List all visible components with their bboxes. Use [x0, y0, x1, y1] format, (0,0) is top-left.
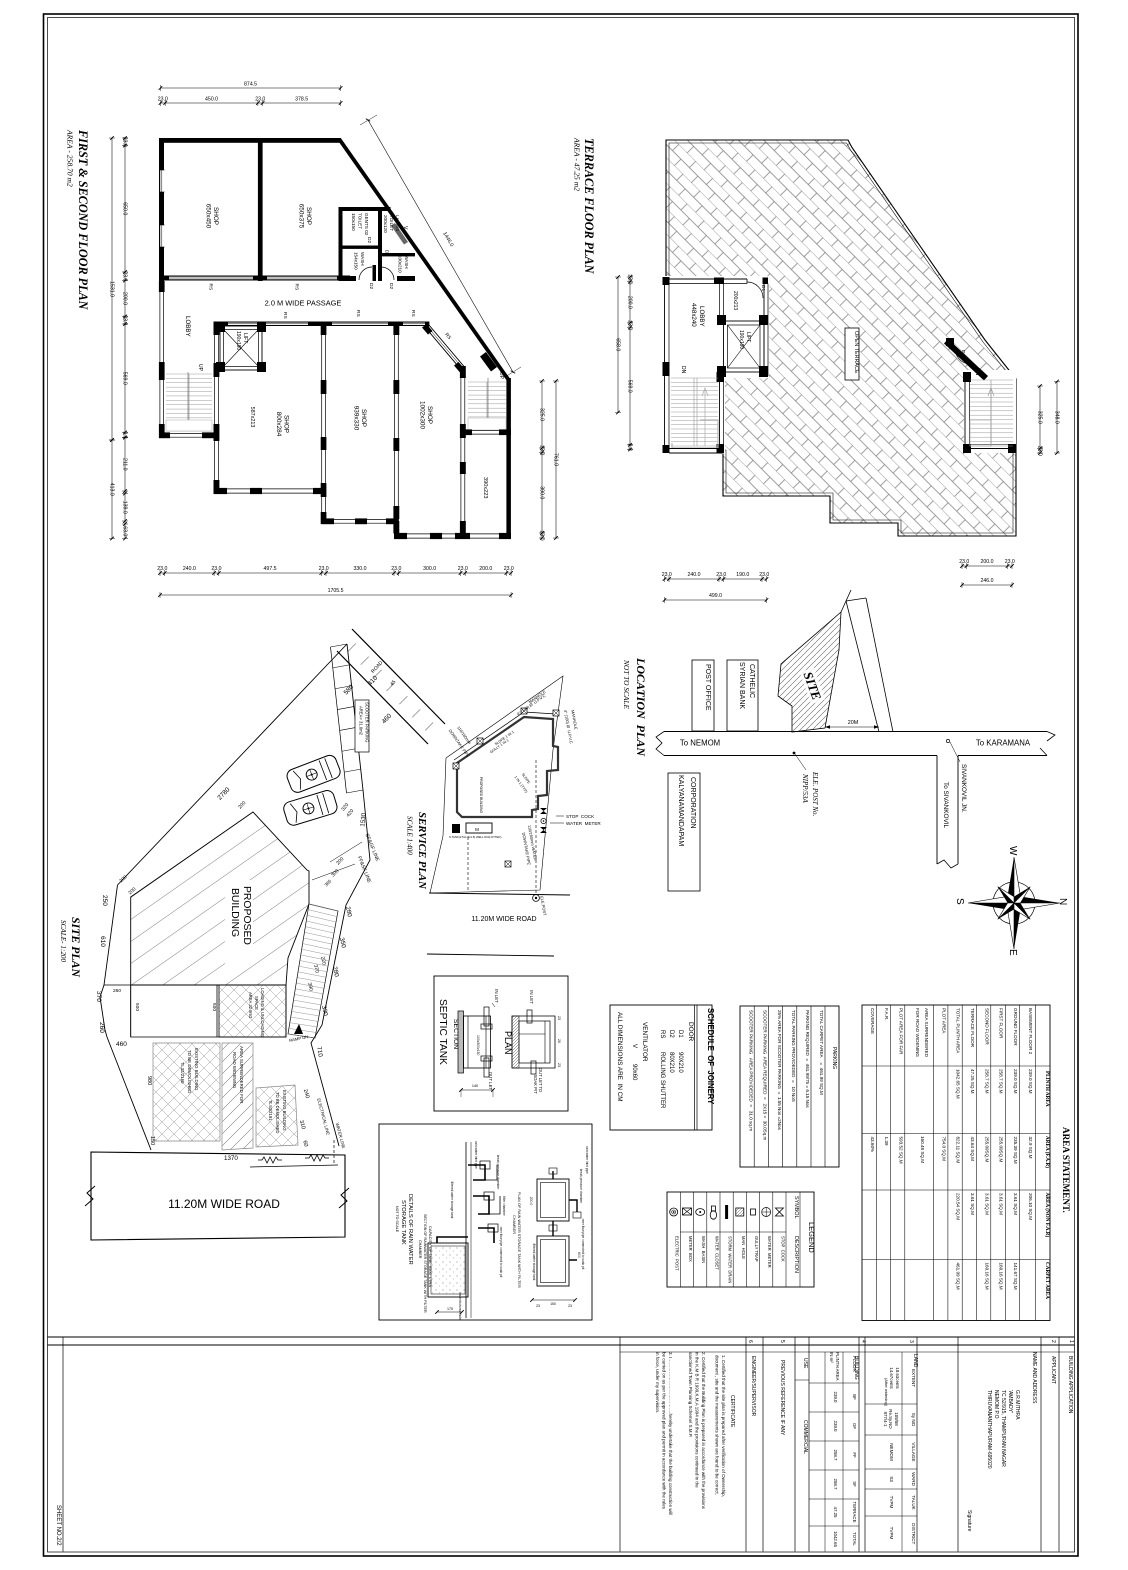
svg-text:RS: RS	[355, 310, 361, 317]
svg-text:METER BOX: METER BOX	[688, 1236, 693, 1262]
svg-text:VENTILATOR: VENTILATOR	[641, 1022, 648, 1062]
svg-text:ENGINEER/SUPERVISOR: ENGINEER/SUPERVISOR	[750, 1356, 756, 1417]
svg-text:240.0: 240.0	[183, 566, 196, 572]
svg-text:658.0: 658.0	[615, 338, 621, 351]
svg-text:23.0: 23.0	[1037, 446, 1043, 456]
svg-text:200.0: 200.0	[479, 566, 492, 572]
svg-text:461.99 SQ.M: 461.99 SQ.M	[956, 1263, 961, 1290]
svg-text:(After widening): (After widening)	[884, 1378, 889, 1407]
svg-text:SCHEDULE OF JOINERY: SCHEDULE OF JOINERY	[706, 1008, 715, 1105]
svg-text:PLINTH AREA: PLINTH AREA	[1044, 1071, 1050, 1107]
svg-text:STORM WATER DRAIN: STORM WATER DRAIN	[728, 1236, 733, 1283]
svg-text:D1: D1	[960, 350, 966, 356]
svg-text:3.61 SQ.M: 3.61 SQ.M	[984, 1193, 989, 1215]
svg-text:AREA 32.9m2: AREA 32.9m2	[248, 992, 253, 1019]
svg-text:800x284: 800x284	[275, 412, 282, 437]
svg-text:LOCATION PLAN: LOCATION PLAN	[634, 657, 648, 757]
svg-text:NEMOM P.O: NEMOM P.O	[993, 1390, 999, 1419]
svg-text:D2: D2	[368, 283, 374, 289]
svg-text:WARD: WARD	[911, 1472, 916, 1487]
svg-text:235.39 SQ.M: 235.39 SQ.M	[1013, 1137, 1018, 1164]
svg-text:TO BE DEMOLISHED: TO BE DEMOLISHED	[187, 1050, 192, 1093]
svg-text:23.0: 23.0	[539, 445, 545, 455]
svg-text:246.0: 246.0	[981, 578, 994, 584]
svg-text:11.20M WIDE ROAD: 11.20M WIDE ROAD	[471, 916, 536, 923]
svg-text:PROPOSED BUILDING: PROPOSED BUILDING	[479, 777, 483, 814]
svg-text:500: 500	[134, 1003, 140, 1011]
svg-text:STORAGE TANK: STORAGE TANK	[400, 1200, 406, 1245]
svg-text:450.0: 450.0	[205, 97, 218, 103]
svg-text:4: 4	[860, 1340, 866, 1343]
svg-text:COVERAGE: COVERAGE	[870, 1008, 875, 1034]
svg-text:2.0 M WIDE PASSAGE: 2.0 M WIDE PASSAGE	[265, 299, 342, 308]
svg-text:FOR ROAD WIDENING: FOR ROAD WIDENING	[915, 1008, 920, 1057]
svg-text:filtered water storage tank: filtered water storage tank	[532, 1244, 536, 1281]
svg-text:413.0: 413.0	[109, 483, 115, 496]
svg-text:DETAILS OF RAIN WATER: DETAILS OF RAIN WATER	[407, 1194, 413, 1265]
svg-text:RS: RS	[659, 1030, 665, 1038]
svg-text:SITE PLAN: SITE PLAN	[69, 917, 83, 977]
svg-text:ELE. POST No.: ELE. POST No.	[811, 771, 819, 816]
svg-text:LIFT: LIFT	[745, 332, 751, 342]
svg-text:23.0: 23.0	[319, 566, 329, 572]
svg-text:1531.0: 1531.0	[109, 281, 115, 297]
svg-text:WATER METER: WATER METER	[566, 821, 601, 826]
svg-text:100x300x150: 100x300x150	[476, 1035, 480, 1055]
svg-text:To NEMOM: To NEMOM	[680, 739, 720, 748]
svg-text:497.5: 497.5	[264, 566, 277, 572]
svg-text:3. I……………………………….hereby undert: 3. I……………………………….hereby undertake that t…	[668, 1352, 673, 1515]
svg-text:977/4-1: 977/4-1	[883, 1412, 888, 1427]
svg-text:63.0: 63.0	[122, 526, 128, 536]
svg-text:BUILDING: BUILDING	[229, 888, 240, 937]
svg-text:448x240: 448x240	[690, 303, 697, 327]
svg-text:WASH BASIN: WASH BASIN	[701, 1236, 706, 1263]
svg-text:THIRUVANANTHAPURAM-695020: THIRUVANANTHAPURAM-695020	[986, 1390, 992, 1469]
svg-text:TOTAL: TOTAL	[852, 1532, 857, 1546]
svg-text:SECTION OF RAINWATER STORAGE T: SECTION OF RAINWATER STORAGE TANK WITH F…	[423, 1214, 427, 1313]
svg-text:be carried on as per the appro: be carried on as per the approved plan a…	[662, 1352, 667, 1510]
svg-text:TOTAL PARKING PROVIDEDED =: TOTAL PARKING PROVIDEDED = 10 NoS	[791, 1010, 796, 1102]
svg-text:USE: USE	[802, 1358, 808, 1369]
svg-text:139.0: 139.0	[122, 501, 128, 514]
svg-text:LEGEND: LEGEND	[807, 1222, 816, 1253]
svg-text:23: 23	[568, 1304, 572, 1308]
svg-text:GENTS 02: GENTS 02	[364, 213, 369, 236]
svg-text:W: W	[1007, 846, 1018, 856]
svg-text:160.48 SQ.M: 160.48 SQ.M	[920, 1136, 925, 1163]
svg-text:PLOT AREA: PLOT AREA	[941, 1008, 946, 1034]
svg-text:1002x300: 1002x300	[419, 401, 426, 430]
svg-text:150x150: 150x150	[351, 213, 356, 231]
svg-text:NOT TO SCALE: NOT TO SCALE	[622, 659, 631, 710]
svg-text:PLAN: PLAN	[503, 1031, 513, 1055]
svg-text:TERRACE FLOOR PLAN: TERRACE FLOOR PLAN	[582, 138, 596, 275]
svg-text:AREA SURRENDERED: AREA SURRENDERED	[924, 1008, 929, 1058]
svg-text:160.16 SQ.M: 160.16 SQ.M	[999, 1263, 1004, 1290]
svg-text:650x375: 650x375	[298, 204, 305, 229]
svg-text:GROUND FLOOR: GROUND FLOOR	[1013, 1008, 1018, 1046]
svg-text:150: 150	[550, 1302, 556, 1306]
svg-text:23.0: 23.0	[122, 137, 128, 147]
svg-text:200.0: 200.0	[529, 1197, 533, 1206]
svg-text:378.5: 378.5	[295, 97, 308, 103]
svg-text:23.0: 23.0	[157, 566, 167, 572]
svg-text:GULLY TRAP: GULLY TRAP	[754, 1236, 759, 1262]
svg-text:D2: D2	[384, 250, 390, 256]
svg-text:SEPTIC TANK: SEPTIC TANK	[437, 999, 448, 1065]
svg-text:5: 5	[779, 1340, 785, 1343]
svg-text:Signature: Signature	[966, 1510, 972, 1532]
svg-text:PLINTH AREA: PLINTH AREA	[835, 1352, 840, 1381]
svg-text:23.0: 23.0	[504, 566, 514, 572]
svg-text:200.0: 200.0	[627, 296, 633, 309]
svg-text:IN LET: IN LET	[494, 989, 499, 1003]
svg-text:EXTENT: EXTENT	[911, 1369, 916, 1387]
svg-text:175: 175	[447, 1307, 453, 1311]
svg-text:over flow pipe connected to so: over flow pipe connected to soak pit	[499, 1227, 503, 1278]
svg-text:761.0: 761.0	[553, 453, 559, 466]
svg-text:AREA (F.A.R): AREA (F.A.R)	[1044, 1136, 1051, 1168]
svg-text:sanctioned Town Planning Schem: sanctioned Town Planning Scheme/ S.M.P.	[688, 1352, 693, 1437]
svg-text:FIRST FLOOR: FIRST FLOOR	[999, 1008, 1004, 1039]
svg-text:RS: RS	[282, 312, 288, 319]
svg-text:600: 600	[577, 1252, 581, 1258]
svg-text:PLAN OF RAIN WATER STORAGE TAN: PLAN OF RAIN WATER STORAGE TANK WITH FIL…	[517, 1192, 521, 1288]
svg-text:23.0: 23.0	[1005, 559, 1015, 565]
svg-text:206.10 SQ.M: 206.10 SQ.M	[1028, 1193, 1033, 1220]
svg-text:258.7 SQ.M: 258.7 SQ.M	[984, 1069, 989, 1094]
svg-text:To KARAMANA: To KARAMANA	[976, 739, 1031, 748]
svg-text:SYRIAN BANK: SYRIAN BANK	[738, 662, 745, 709]
svg-text:BASEMENT FLOOR 2: BASEMENT FLOOR 2	[1028, 1008, 1033, 1055]
svg-text:CARPET AREA: CARPET AREA	[1044, 1262, 1050, 1299]
svg-text:TOTAL PLINTH AREA: TOTAL PLINTH AREA	[956, 1008, 961, 1054]
svg-text:SHOP: SHOP	[283, 415, 290, 433]
svg-text:2.3: 2.3	[627, 444, 633, 451]
svg-text:160.16 SQ.M: 160.16 SQ.M	[984, 1263, 989, 1290]
svg-text:WASH: WASH	[360, 252, 365, 266]
svg-text:23.0: 23.0	[627, 320, 633, 330]
svg-text:SHOP: SHOP	[212, 207, 219, 225]
svg-text:CHAMBER: CHAMBER	[512, 1215, 516, 1234]
svg-text:SCOOTER PARKING: SCOOTER PARKING	[365, 702, 370, 742]
svg-text:WASH: WASH	[404, 255, 409, 269]
svg-text:DISTRICT: DISTRICT	[911, 1523, 916, 1544]
svg-text:239.0: 239.0	[833, 1392, 838, 1404]
svg-text:200x120: 200x120	[383, 215, 388, 233]
svg-text:FIRST & SECOND FLOOR PLAN: FIRST & SECOND FLOOR PLAN	[76, 129, 90, 311]
svg-text:43.64 SQ.M: 43.64 SQ.M	[970, 1137, 975, 1162]
svg-text:OUT LET: OUT LET	[488, 1072, 493, 1091]
svg-text:LIFT: LIFT	[242, 333, 248, 343]
svg-text:23.0: 23.0	[759, 572, 769, 578]
svg-text:SYMBOL: SYMBOL	[793, 1196, 799, 1218]
svg-text:SCALE 1:400: SCALE 1:400	[406, 816, 414, 855]
svg-text:PARKING REQUIRED = 461.99/75: PARKING REQUIRED = 461.99/75 = 6.15 Nos	[805, 1010, 810, 1108]
svg-text:Tc.32/2160: Tc.32/2160	[180, 1062, 185, 1084]
svg-text:18.63cents: 18.63cents	[895, 1367, 900, 1389]
svg-text:23.0: 23.0	[539, 530, 545, 540]
svg-text:STOP COCK: STOP COCK	[566, 814, 595, 819]
svg-text:ROAD WIDENING: ROAD WIDENING	[232, 1052, 237, 1089]
svg-text:822.11 SQ.M: 822.11 SQ.M	[956, 1137, 961, 1164]
svg-text:F.A.R.: F.A.R.	[884, 1008, 889, 1021]
svg-text:TERRACE: TERRACE	[852, 1502, 857, 1523]
svg-text:258.7: 258.7	[833, 1479, 838, 1491]
svg-text:NIPP/53A: NIPP/53A	[801, 773, 809, 803]
svg-text:390x223: 390x223	[482, 477, 488, 498]
svg-text:255.09SQ.M: 255.09SQ.M	[984, 1137, 989, 1163]
svg-text:150: 150	[149, 1136, 155, 1145]
svg-text:filter chamber: filter chamber	[502, 1196, 506, 1216]
svg-text:1530: 1530	[359, 812, 367, 827]
svg-text:20M: 20M	[848, 720, 859, 726]
svg-text:DN: DN	[974, 368, 980, 376]
svg-text:STOP COCK: STOP COCK	[780, 1236, 785, 1262]
svg-text:300.0: 300.0	[423, 566, 436, 572]
svg-text:LADIES: LADIES	[395, 215, 400, 231]
svg-text:80X210: 80X210	[668, 1052, 674, 1073]
svg-text:UP: UP	[197, 364, 203, 372]
svg-text:SECOND FLOOR: SECOND FLOOR	[984, 1008, 989, 1045]
svg-text:AREA - 47.25 m2: AREA - 47.25 m2	[573, 137, 582, 191]
svg-text:3.61 SQ.M: 3.61 SQ.M	[1013, 1193, 1018, 1215]
svg-text:CATHELIC: CATHELIC	[748, 664, 755, 698]
svg-text:23.0: 23.0	[662, 572, 672, 578]
svg-text:939x330: 939x330	[353, 406, 360, 431]
svg-text:EXISTING BUILDING: EXISTING BUILDING	[282, 1090, 287, 1131]
svg-text:SPACE: SPACE	[254, 996, 259, 1010]
svg-text:D2: D2	[668, 1030, 674, 1038]
svg-text:UP: UP	[498, 372, 504, 380]
svg-text:650x450: 650x450	[205, 204, 212, 229]
svg-text:980: 980	[146, 1076, 152, 1085]
svg-text:AREA STATEMENT.: AREA STATEMENT.	[1061, 1127, 1071, 1213]
svg-text:M: M	[475, 827, 479, 832]
svg-text:154x150: 154x150	[354, 252, 359, 270]
svg-text:569.0: 569.0	[122, 372, 128, 385]
svg-text:AREA - 258.70 m2: AREA - 258.70 m2	[66, 129, 75, 187]
svg-text:255.09SQ.M: 255.09SQ.M	[999, 1137, 1004, 1163]
svg-text:2: 2	[1050, 1340, 1056, 1343]
svg-text:SOAK PIT: SOAK PIT	[533, 1074, 538, 1094]
svg-text:330.0: 330.0	[354, 566, 367, 572]
svg-text:239.0 SQ.M: 239.0 SQ.M	[1028, 1069, 1033, 1094]
svg-text:650.0: 650.0	[122, 202, 128, 215]
svg-text:3.61 SQ.M: 3.61 SQ.M	[999, 1193, 1004, 1215]
svg-text:BF: BF	[852, 1394, 857, 1400]
svg-text:23.0: 23.0	[959, 559, 969, 565]
svg-text:460: 460	[116, 1041, 127, 1048]
svg-text:PLOT AREA FOR FAR: PLOT AREA FOR FAR	[898, 1008, 903, 1055]
svg-text:CERTIFICATE: CERTIFICATE	[729, 1395, 735, 1428]
svg-text:IN m²: IN m²	[829, 1352, 834, 1363]
svg-text:RS: RS	[294, 284, 300, 291]
svg-text:V: V	[631, 1044, 637, 1048]
svg-text:LOBBY: LOBBY	[184, 316, 191, 337]
svg-text:325.0: 325.0	[1037, 411, 1043, 424]
svg-text:239.0: 239.0	[833, 1421, 838, 1433]
svg-text:1705.5: 1705.5	[328, 588, 344, 594]
svg-text:D2: D2	[366, 237, 372, 243]
svg-text:11.20M WIDE ROAD: 11.20M WIDE ROAD	[168, 1197, 280, 1211]
svg-text:D2: D2	[388, 283, 394, 289]
svg-text:SCOOTER PARKING AREA PROVIDE: SCOOTER PARKING AREA PROVIDEDED = 31.0 s…	[748, 1010, 753, 1131]
svg-text:874.5: 874.5	[244, 82, 257, 88]
svg-text:260: 260	[98, 1022, 105, 1033]
svg-text:1042.65 SQ.M: 1042.65 SQ.M	[956, 1069, 961, 1099]
svg-text:SCALE- 1:200: SCALE- 1:200	[59, 920, 67, 963]
svg-text:inspection manhole: inspection manhole	[458, 1292, 462, 1320]
svg-text:240.0: 240.0	[688, 572, 701, 578]
svg-text:D1: D1	[760, 285, 766, 291]
svg-text:Sy NO: Sy NO	[911, 1413, 916, 1427]
svg-text:E: E	[1007, 949, 1018, 956]
svg-text:TERRACE FLOOR: TERRACE FLOOR	[970, 1008, 975, 1048]
svg-text:23.0: 23.0	[627, 274, 633, 284]
svg-text:SERVICE PLAN: SERVICE PLAN	[416, 812, 428, 890]
svg-text:23: 23	[557, 1016, 561, 1020]
svg-text:23.0: 23.0	[458, 566, 468, 572]
svg-text:TC 52/915, THAMPURAN NAGAR: TC 52/915, THAMPURAN NAGAR	[1000, 1390, 1006, 1467]
svg-text:KALYANAMANDAPAM: KALYANAMANDAPAM	[677, 775, 684, 846]
svg-text:SHOP: SHOP	[426, 406, 433, 424]
svg-text:DESCRIPTION: DESCRIPTION	[793, 1236, 799, 1273]
svg-text:APPLICANT: APPLICANT	[1050, 1356, 1056, 1384]
svg-text:TOILET: TOILET	[358, 213, 363, 229]
svg-text:COMMERCIAL: COMMERCIAL	[802, 1420, 808, 1454]
svg-text:Tc.53/2191: Tc.53/2191	[268, 1100, 273, 1121]
svg-text:587x213: 587x213	[249, 407, 255, 428]
svg-text:23: 23	[536, 1304, 540, 1308]
svg-text:47.25: 47.25	[833, 1507, 838, 1519]
svg-text:LAND: LAND	[912, 1354, 918, 1368]
svg-text:in force, under my supervision: in force, under my supervision.	[655, 1352, 660, 1413]
svg-text:SF: SF	[852, 1481, 857, 1487]
svg-text:2. Certified that the Building: 2. Certified that the Building Plan is p…	[701, 1352, 706, 1510]
svg-text:SIVANKOVIL JN.: SIVANKOVIL JN.	[960, 764, 967, 813]
svg-text:FF: FF	[852, 1452, 857, 1458]
svg-text:500: 500	[211, 1003, 217, 1011]
svg-text:filtered water storage tank: filtered water storage tank	[450, 1182, 454, 1219]
svg-text:N: N	[1057, 898, 1068, 905]
svg-text:'AMBADY': 'AMBADY'	[1007, 1390, 1013, 1413]
svg-text:OPEN TERRACE: OPEN TERRACE	[853, 331, 859, 374]
svg-text:190x190: 190x190	[738, 330, 744, 349]
svg-text:1370: 1370	[224, 1155, 238, 1162]
svg-text:rain water inlet pipe: rain water inlet pipe	[474, 1141, 478, 1169]
svg-text:break pressure chamber: break pressure chamber	[579, 1169, 583, 1204]
svg-text:TALUK: TALUK	[911, 1495, 916, 1510]
svg-text:LOBBY: LOBBY	[698, 306, 705, 327]
svg-text:3: 3	[908, 1340, 914, 1343]
svg-text:PARKING: PARKING	[831, 1047, 837, 1069]
svg-text:AREA= 31.0m2: AREA= 31.0m2	[359, 706, 364, 736]
svg-text:DOOR: DOOR	[687, 1022, 694, 1042]
svg-text:S3: S3	[889, 1476, 894, 1482]
svg-text:SHEET NO.2/2: SHEET NO.2/2	[55, 1505, 61, 1546]
svg-text:23.0: 23.0	[158, 97, 168, 103]
svg-text:EXISTING BUILDING: EXISTING BUILDING	[194, 1048, 199, 1091]
svg-text:TOTAL CARPET AREA = 461.99: TOTAL CARPET AREA = 461.99 SQ.M	[819, 1010, 824, 1095]
svg-text:AREA SURRENDERED FOR: AREA SURRENDERED FOR	[239, 1046, 244, 1103]
svg-text:220.54 SQ.M: 220.54 SQ.M	[956, 1193, 961, 1220]
svg-text:ALL DIMENSIONS ARE IN CM: ALL DIMENSIONS ARE IN CM	[616, 1012, 623, 1102]
svg-text:348.0: 348.0	[1054, 411, 1060, 424]
svg-text:90x60: 90x60	[631, 1064, 637, 1081]
svg-text:ELECTRIC POST: ELECTRIC POST	[675, 1236, 680, 1271]
svg-text:document , site and the measur: document , site and the measurements sho…	[715, 1355, 720, 1495]
svg-text:100x210: 100x210	[398, 255, 403, 273]
svg-text:43.60%: 43.60%	[870, 1137, 875, 1153]
svg-text:23.0: 23.0	[211, 566, 221, 572]
svg-text:569.0: 569.0	[627, 380, 633, 393]
svg-text:610: 610	[99, 936, 106, 947]
svg-text:190.0: 190.0	[736, 572, 749, 578]
svg-text:90X210: 90X210	[677, 1052, 683, 1073]
svg-text:SHOP: SHOP	[360, 409, 367, 427]
svg-text:RS: RS	[410, 310, 416, 317]
svg-text:109/58: 109/58	[894, 1412, 899, 1426]
svg-text:WATER CLOSET: WATER CLOSET	[714, 1236, 719, 1270]
svg-text:G.R.MITHRA: G.R.MITHRA	[1014, 1390, 1020, 1420]
svg-text:rain water inlet pipe: rain water inlet pipe	[585, 1146, 589, 1174]
svg-text:1. Certified that the site pla: 1. Certified that the site plan is prepa…	[721, 1355, 726, 1497]
svg-text:CORPORATION: CORPORATION	[689, 777, 696, 829]
svg-text:1.39: 1.39	[884, 1137, 889, 1146]
svg-text:PROPOSED: PROPOSED	[241, 886, 252, 945]
svg-text:BUILDING APPLICATION: BUILDING APPLICATION	[1067, 1356, 1073, 1414]
svg-text:390.0: 390.0	[539, 486, 545, 499]
svg-text:200.0: 200.0	[981, 559, 994, 565]
svg-text:TVPM: TVPM	[889, 1496, 894, 1509]
svg-text:141.67 SQ.M: 141.67 SQ.M	[1013, 1263, 1018, 1290]
svg-text:190x190: 190x190	[235, 331, 241, 350]
svg-text:325.0: 325.0	[539, 408, 545, 421]
svg-text:23.0: 23.0	[122, 315, 128, 325]
svg-text:140: 140	[472, 1084, 478, 1088]
svg-text:SHOP: SHOP	[305, 207, 312, 225]
svg-text:GF: GF	[852, 1423, 857, 1429]
svg-text:1042.65: 1042.65	[833, 1531, 838, 1547]
svg-text:6: 6	[747, 1340, 753, 1343]
svg-text:23.0: 23.0	[391, 566, 401, 572]
svg-text:CHAMBER: CHAMBER	[418, 1240, 422, 1259]
svg-text:S.TANK(2.5x1.5x1.5) WELL NO(LO: S.TANK(2.5x1.5x1.5) WELL NO(LOTTED)	[449, 835, 501, 839]
svg-text:47.25 SQ.M: 47.25 SQ.M	[970, 1069, 975, 1094]
svg-text:23.0: 23.0	[122, 271, 128, 281]
svg-text:260: 260	[113, 988, 121, 994]
svg-text:258.7 SQ.M: 258.7 SQ.M	[999, 1069, 1004, 1094]
svg-text:POST OFFICE: POST OFFICE	[704, 664, 711, 711]
svg-text:break pressure chamber: break pressure chamber	[496, 1155, 500, 1190]
svg-text:754.0 SQ.M: 754.0 SQ.M	[941, 1137, 946, 1162]
svg-text:DN: DN	[680, 366, 686, 374]
svg-text:23.0: 23.0	[716, 572, 726, 578]
svg-text:IN LET: IN LET	[529, 990, 534, 1004]
svg-text:SCOOTER PARKING AREA REQUIRED: SCOOTER PARKING AREA REQUIRED = 2X15 = 3…	[763, 1010, 768, 1141]
svg-text:WATER METER: WATER METER	[767, 1236, 772, 1268]
svg-text:3.61 SQ.M: 3.61 SQ.M	[970, 1193, 975, 1215]
svg-text:593.52 SQ.M: 593.52 SQ.M	[898, 1137, 903, 1164]
svg-text:23.0: 23.0	[255, 97, 265, 103]
svg-text:NAME AND ADDRESS: NAME AND ADDRESS	[1031, 1352, 1037, 1404]
svg-text:200x213: 200x213	[732, 291, 738, 310]
svg-text:LOADING & UNLOADING: LOADING & UNLOADING	[260, 988, 265, 1037]
svg-text:in the K.M B R 1999,K.M.A 1994: in the K.M B R 1999,K.M.A 1994 and the p…	[695, 1352, 700, 1488]
svg-text:370: 370	[95, 991, 102, 1002]
